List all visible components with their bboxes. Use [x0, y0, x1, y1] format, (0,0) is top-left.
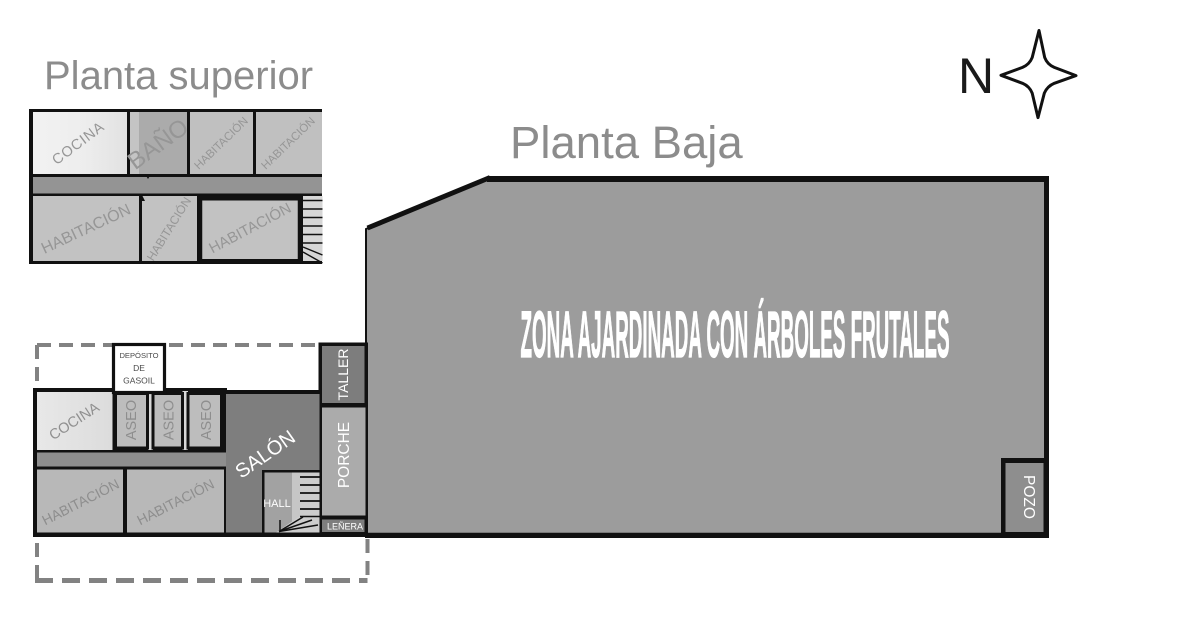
svg-text:HALL: HALL — [263, 498, 291, 510]
svg-text:PORCHE: PORCHE — [336, 422, 353, 488]
svg-text:N: N — [958, 48, 994, 104]
svg-text:DEPÓSITO: DEPÓSITO — [119, 351, 158, 360]
svg-text:ASEO: ASEO — [124, 400, 140, 440]
svg-text:Planta superior: Planta superior — [44, 54, 313, 98]
svg-text:LEÑERA: LEÑERA — [327, 522, 363, 532]
svg-text:Planta Baja: Planta Baja — [510, 117, 743, 168]
svg-text:DE: DE — [133, 363, 145, 373]
svg-text:GASOIL: GASOIL — [123, 376, 155, 386]
svg-text:ZONA AJARDINADA CON ÁRBOLES FR: ZONA AJARDINADA CON ÁRBOLES FRUTALES — [521, 298, 950, 371]
svg-text:ASEO: ASEO — [199, 400, 215, 440]
svg-text:POZO: POZO — [1020, 475, 1037, 519]
svg-text:TALLER: TALLER — [335, 349, 351, 401]
svg-text:ASEO: ASEO — [162, 400, 178, 440]
